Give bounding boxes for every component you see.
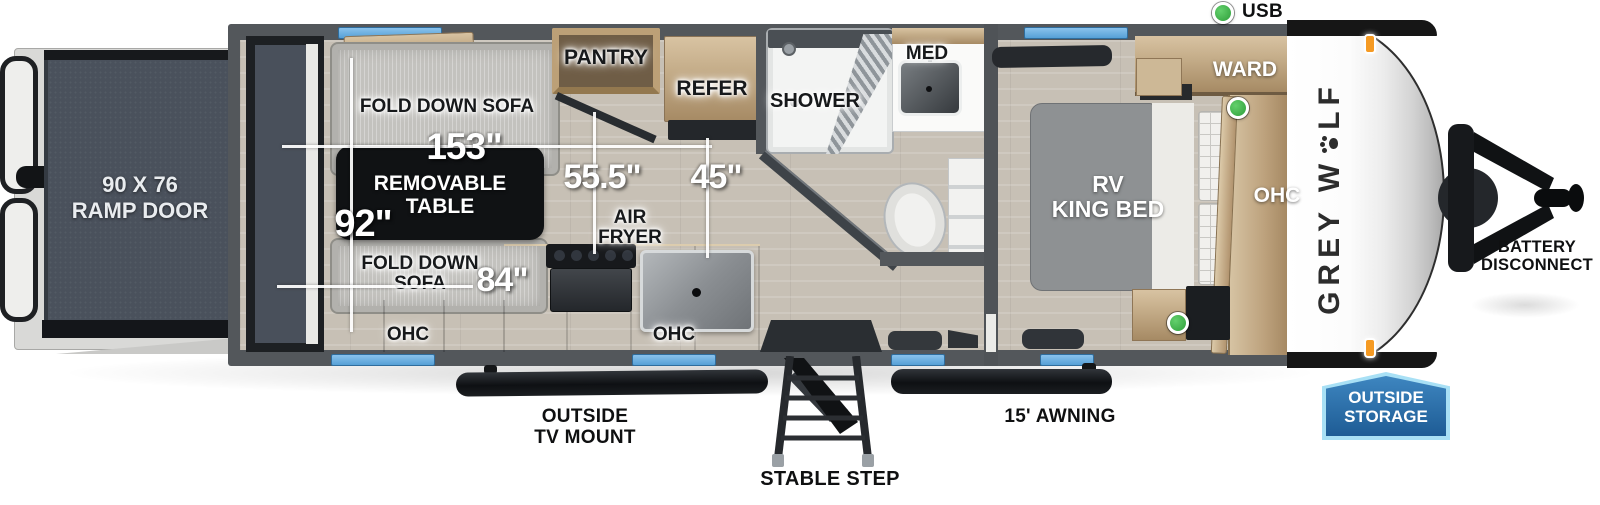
usb-port-indicator-bottom	[1167, 312, 1189, 334]
brand-text-lf: LF	[1313, 81, 1347, 130]
measurement-sofa: 84"	[460, 261, 544, 300]
fold-down-sofa-top-label: FOLD DOWN SOFA	[338, 97, 556, 117]
bedroom-dresser	[1186, 286, 1230, 340]
removable-table-line1: REMOVABLE	[356, 172, 524, 195]
ramp-door-label: 90 X 76 RAMP DOOR	[60, 172, 220, 225]
marker-light-top	[1364, 34, 1376, 54]
outside-storage-badge: OUTSIDE STORAGE	[1322, 372, 1450, 440]
marker-light-bottom	[1364, 338, 1376, 358]
stable-step-ladder	[770, 356, 882, 468]
window-bottom-sofa	[331, 354, 435, 366]
measurement-kitchen: 55.5"	[550, 158, 654, 197]
usb-legend-icon	[1212, 2, 1234, 24]
awning-label: 15' AWNING	[990, 406, 1130, 427]
ohc-kitchen-label: OHC	[644, 325, 704, 345]
bed-line2: KING BED	[1040, 197, 1176, 222]
measurement-interior-width: 92"	[324, 203, 402, 246]
ramp-door-size: 90 X 76	[60, 172, 220, 198]
ohc-front-cabinet	[1228, 95, 1292, 355]
rear-bumper-rail-bottom	[0, 198, 38, 322]
air-fryer-label: AIR FRYER	[596, 208, 664, 248]
rv-king-bed-label: RV KING BED	[1040, 172, 1176, 223]
stable-step-label: STABLE STEP	[752, 468, 908, 490]
stove-oven	[550, 268, 632, 312]
bath-sink-drain	[926, 86, 932, 92]
measure-line-92	[350, 58, 353, 332]
bedroom-speaker	[1022, 329, 1084, 349]
outside-tv-mount-bar	[456, 369, 768, 396]
tv-mount-line2: TV MOUNT	[518, 427, 652, 448]
sink-drain	[692, 288, 701, 297]
ramp-door-text: RAMP DOOR	[60, 198, 220, 224]
measure-line-84	[277, 285, 473, 288]
measure-line-45	[706, 138, 709, 258]
bedroom-door	[986, 314, 996, 352]
shower-label: SHOWER	[770, 91, 854, 112]
med-label: MED	[898, 44, 956, 64]
outside-tv-mount-label: OUTSIDE TV MOUNT	[518, 406, 652, 449]
front-cap-trim-top	[1287, 20, 1437, 36]
ohc-bedroom-label: OHC	[1248, 184, 1306, 207]
entry-landing	[760, 320, 882, 352]
bed-line1: RV	[1040, 172, 1176, 197]
window-bottom-kitchen	[632, 354, 716, 366]
air-fryer-line2: FRYER	[596, 228, 664, 248]
storage-line1: OUTSIDE	[1322, 389, 1450, 408]
usb-port-indicator-top	[1227, 97, 1249, 119]
brand-text-grey-w: GREY W	[1313, 158, 1347, 315]
med-counter-top	[892, 28, 990, 44]
tv-mount-line1: OUTSIDE	[518, 406, 652, 427]
nightstand-top	[1136, 58, 1182, 96]
rv-floorplan: 90 X 76 RAMP DOOR FOLD DOWN SOFA REMOVAB…	[0, 0, 1600, 505]
bedroom-tv	[992, 45, 1112, 68]
refer-base	[668, 120, 760, 140]
battery-disconnect-label: BATTERY DISCONNECT	[1470, 238, 1600, 275]
refer-label: REFER	[668, 78, 756, 100]
front-cap-trim-bottom	[1287, 352, 1437, 368]
window-bottom-entry	[891, 354, 945, 366]
usb-legend-label: USB	[1242, 1, 1292, 22]
ramp-door-sill	[42, 320, 238, 338]
ohc-left-label: OHC	[378, 325, 438, 345]
shower-head-icon	[782, 42, 796, 56]
brand-logo: GREY WLF	[1300, 58, 1360, 338]
measurement-entry: 45"	[676, 158, 756, 197]
battery-line1: BATTERY	[1470, 238, 1600, 256]
entry-speaker	[888, 331, 942, 350]
bathroom-bottom-wall	[880, 252, 998, 266]
ward-label: WARD	[1205, 58, 1285, 81]
cargo-door-white-edge	[306, 44, 318, 344]
stove-burners	[554, 250, 565, 261]
measurement-garage-length: 153"	[408, 126, 520, 168]
bath-linen-shelf	[948, 158, 988, 258]
awning-tube	[891, 369, 1112, 394]
paw-print-icon	[1321, 135, 1339, 153]
outside-storage-label: OUTSIDE STORAGE	[1322, 389, 1450, 426]
window-top-bedroom	[1024, 27, 1128, 39]
air-fryer-line1: AIR	[596, 208, 664, 228]
battery-line2: DISCONNECT	[1470, 256, 1600, 274]
hitch-shadow	[1470, 292, 1580, 318]
pantry-label: PANTRY	[558, 47, 654, 69]
storage-line2: STORAGE	[1322, 408, 1450, 427]
